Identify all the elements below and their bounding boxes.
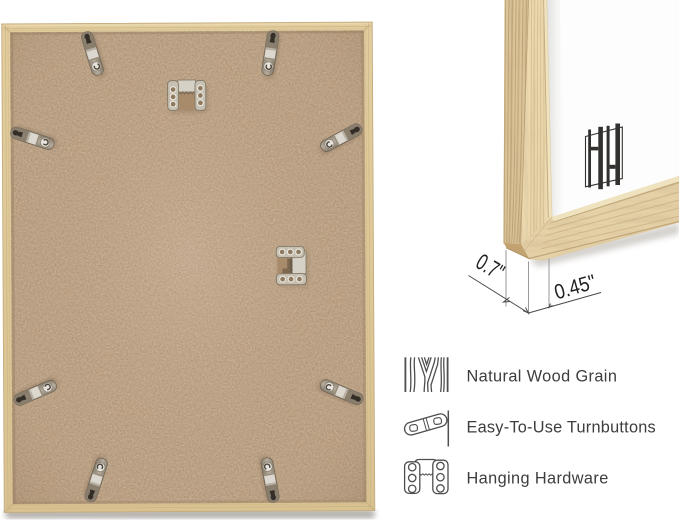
svg-text:Hanging Hardware: Hanging Hardware xyxy=(467,470,609,488)
svg-text:Natural Wood Grain: Natural Wood Grain xyxy=(467,368,618,386)
svg-text:Easy-To-Use Turnbuttons: Easy-To-Use Turnbuttons xyxy=(467,419,656,437)
